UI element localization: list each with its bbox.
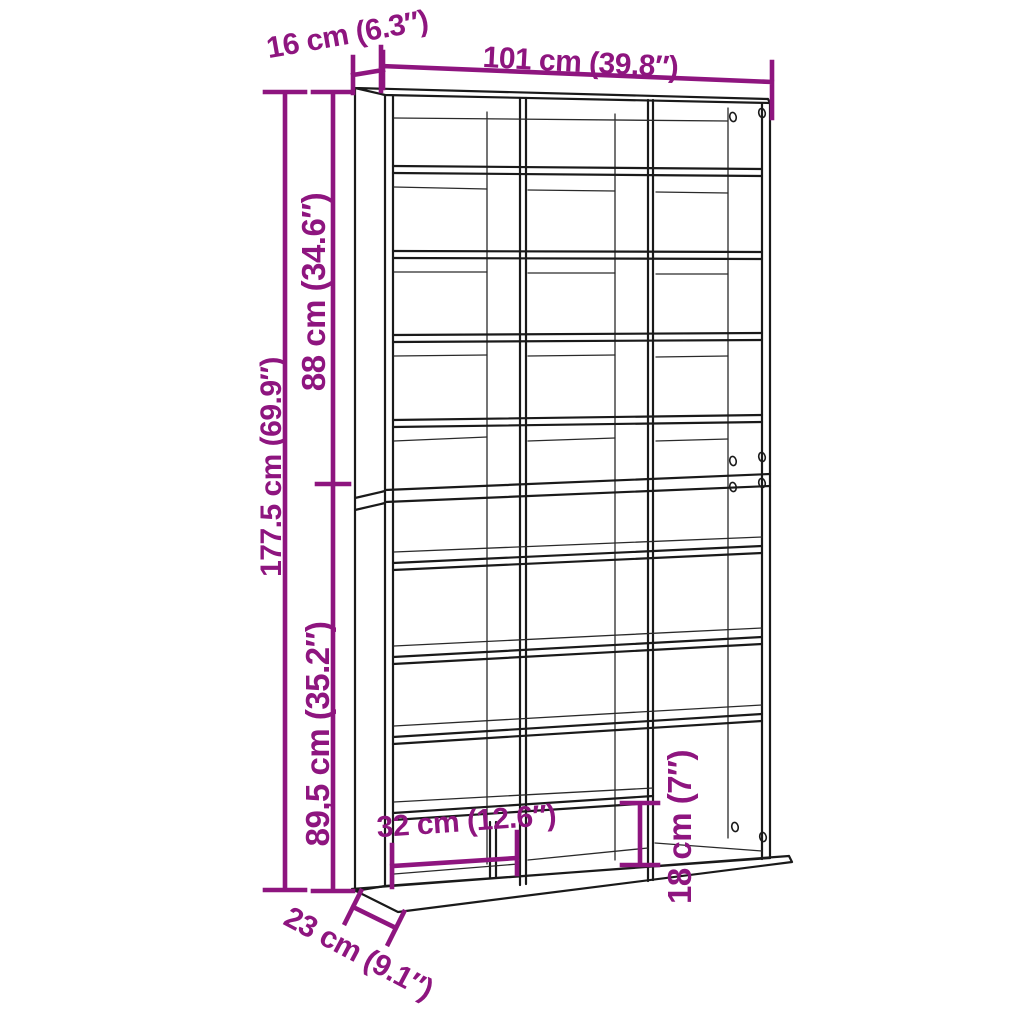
dimension-label-top-depth: 16 cm (6.3″): [264, 4, 431, 65]
dimension-base-depth: 23 cm (9.1″): [279, 891, 439, 1007]
dimension-label-compartment-width: 32 cm (12.6″): [376, 799, 558, 844]
dimension-width: 101 cm (39.8″): [381, 41, 772, 118]
cabinet-verticals: [393, 96, 770, 886]
dimension-top-depth: 16 cm (6.3″): [264, 4, 431, 93]
upper-shelf-back-lines: [394, 187, 728, 441]
dimension-line-top-depth: [353, 52, 383, 93]
lower-shelf-back-lines: [394, 537, 762, 802]
dimension-lower-section-height: 89,5 cm (35.2″): [299, 484, 353, 891]
lower-shelves: [393, 546, 762, 820]
dimension-label-upper-section-height: 88 cm (34.6″): [295, 193, 332, 391]
upper-shelves: [393, 166, 762, 427]
mid-band: [385, 474, 770, 502]
cabinet-left-side: [355, 88, 385, 891]
base-inner-edges: [394, 843, 762, 874]
dimension-label-bottom-compartment-height: 18 cm (7″): [661, 750, 698, 904]
dimension-diagram: 16 cm (6.3″) 101 cm (39.8″) 88 cm (34.6″…: [0, 0, 1024, 1024]
cabinet-line-art: [352, 88, 792, 912]
diagram-svg: 16 cm (6.3″) 101 cm (39.8″) 88 cm (34.6″…: [0, 0, 1024, 1024]
dimension-label-width: 101 cm (39.8″): [482, 41, 679, 84]
dimension-label-base-depth: 23 cm (9.1″): [279, 901, 439, 1007]
cabinet-top-face: [355, 88, 770, 103]
dimension-upper-section-height: 88 cm (34.6″): [295, 92, 353, 484]
dimension-bottom-compartment-height: 18 cm (7″): [622, 750, 698, 904]
dimension-label-lower-section-height: 89,5 cm (35.2″): [299, 622, 336, 847]
dimension-label-total-height: 177.5 cm (69.9″): [255, 357, 288, 577]
